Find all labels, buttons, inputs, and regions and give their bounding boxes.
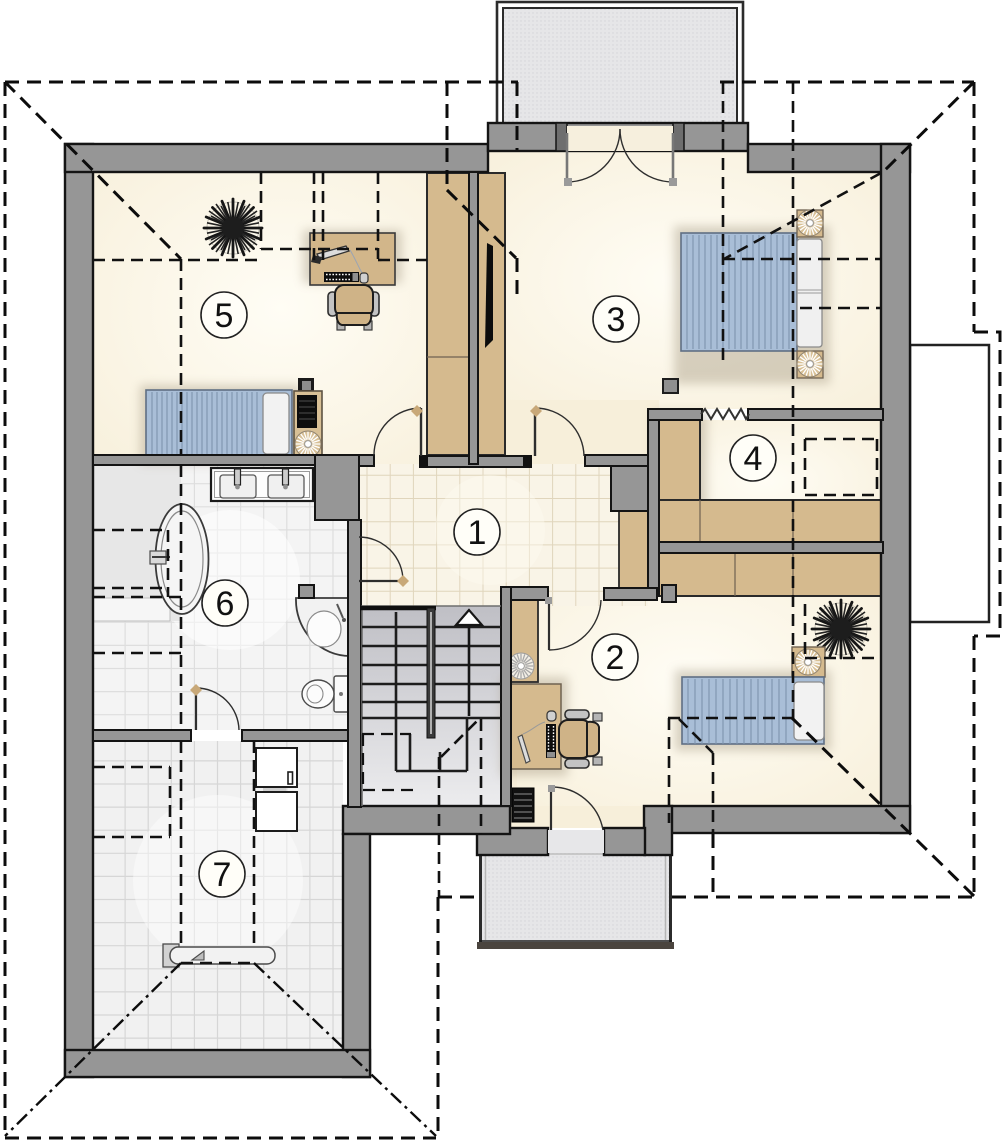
svg-text:5: 5	[215, 297, 234, 335]
svg-text:2: 2	[606, 639, 625, 677]
svg-text:4: 4	[744, 440, 763, 478]
svg-text:3: 3	[607, 301, 626, 339]
svg-text:1: 1	[468, 514, 487, 552]
svg-text:7: 7	[213, 856, 232, 894]
svg-text:6: 6	[216, 585, 235, 623]
